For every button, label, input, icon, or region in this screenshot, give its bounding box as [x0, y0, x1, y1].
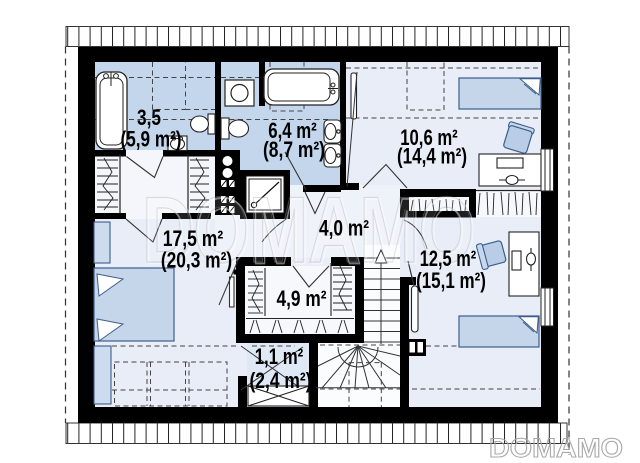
- svg-text:4,0 m²: 4,0 m²: [319, 216, 369, 241]
- svg-text:(14,4 m²): (14,4 m²): [397, 144, 467, 169]
- svg-text:(5,9 m²): (5,9 m²): [121, 127, 182, 152]
- svg-text:DOMAMO: DOMAMO: [489, 433, 623, 463]
- svg-text:4,9 m²: 4,9 m²: [277, 286, 327, 311]
- svg-text:1,1 m²: 1,1 m²: [255, 344, 304, 369]
- svg-text:(8,7 m²): (8,7 m²): [263, 137, 325, 162]
- svg-text:(20,3 m²): (20,3 m²): [161, 248, 232, 273]
- svg-text:(15,1 m²): (15,1 m²): [416, 268, 486, 293]
- svg-text:(2,4 m²): (2,4 m²): [249, 368, 311, 393]
